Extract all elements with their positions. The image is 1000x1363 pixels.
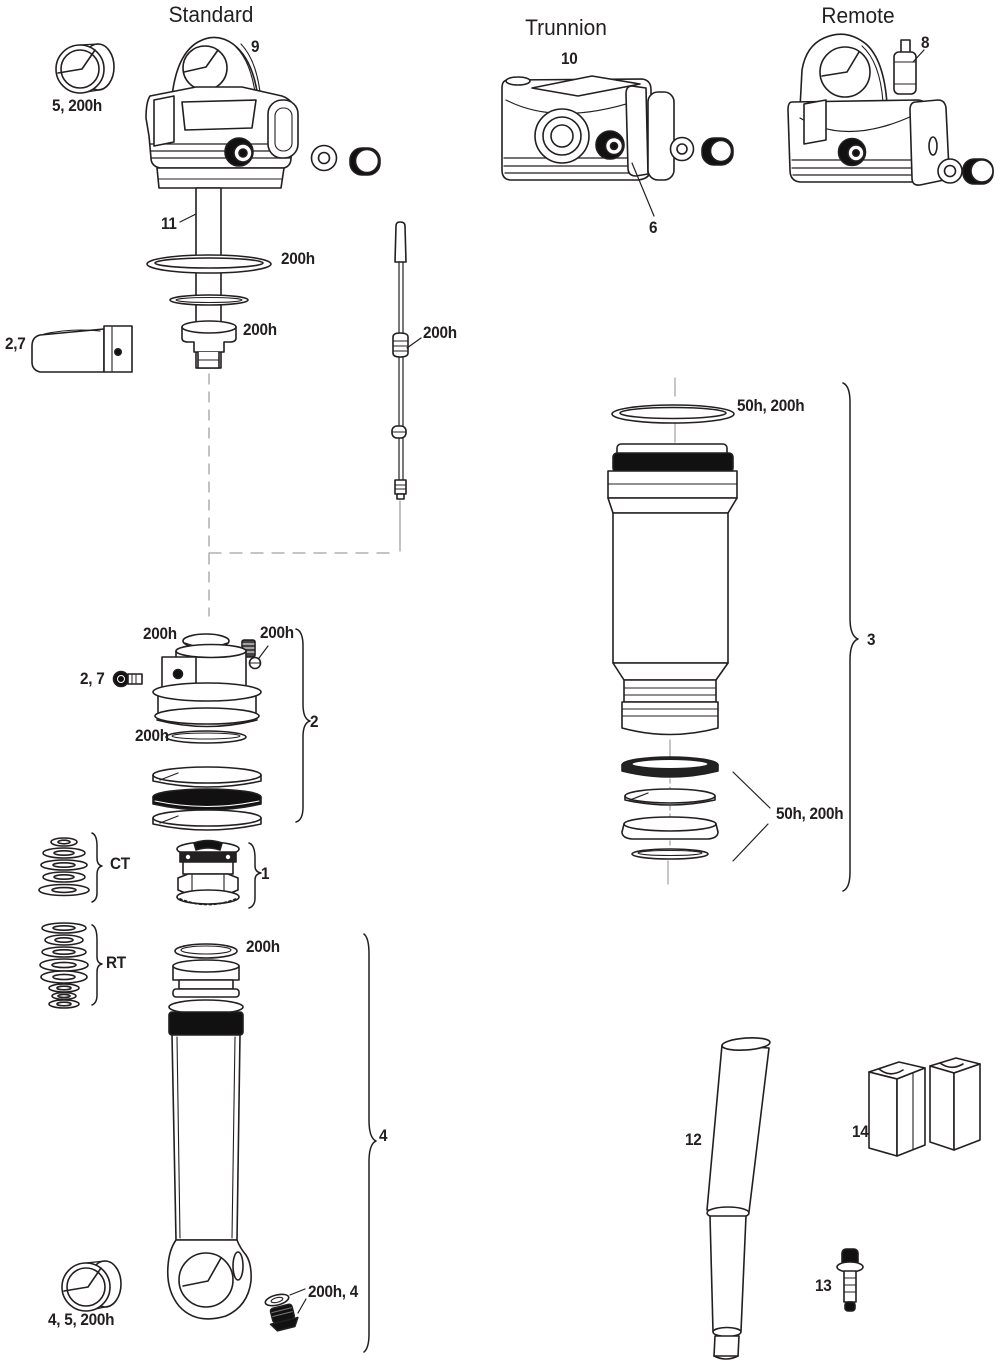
brace-item-4: [364, 934, 376, 1352]
shaft-clamp-drawing: [32, 326, 132, 372]
service-label-valve-parts: 200h, 4: [308, 1282, 358, 1302]
callout-rt: RT: [106, 953, 126, 973]
service-label-piston-cap-seal: 200h: [143, 624, 177, 644]
brace-item-3: [843, 383, 858, 891]
sealhead-drawing: [173, 944, 239, 997]
trunnion-section-title: Trunnion: [525, 15, 607, 41]
service-label-bumper: 200h: [243, 320, 277, 340]
standard-shock-head-drawing: [146, 37, 298, 188]
diagram-line-art: [0, 0, 1000, 1363]
callout-10: 10: [561, 49, 577, 69]
air-can-drawing: [608, 378, 770, 884]
callout-ct: CT: [110, 854, 130, 874]
valve-parts-drawing: [264, 1289, 306, 1332]
trunnion-shock-head-drawing: [502, 76, 674, 216]
remote-shock-head-drawing: [788, 34, 949, 185]
callout-9: 9: [251, 37, 259, 57]
service-label-bushing-top: 5, 200h: [52, 96, 102, 116]
clamp-blocks-drawing: [869, 1058, 980, 1156]
service-label-piston-set-screw: 200h: [260, 623, 294, 643]
callout-13: 13: [815, 1276, 831, 1296]
service-label-piston-bolt: 2, 7: [80, 669, 104, 689]
service-label-aircan-top-seal: 50h, 200h: [737, 396, 804, 416]
damper-piston-drawing: [177, 841, 261, 909]
service-label-rebound-rod: 200h: [423, 323, 457, 343]
damper-body-drawing: [168, 1000, 251, 1319]
trunnion-washer-and-cap-drawing: [671, 138, 734, 166]
callout-3: 3: [867, 630, 875, 650]
service-label-aircan-bot-seals: 50h, 200h: [776, 804, 843, 824]
callout-6: 6: [649, 218, 657, 238]
callout-1: 1: [261, 864, 269, 884]
callout-14: 14: [852, 1122, 868, 1142]
service-label-clamp-top: 2,7: [5, 334, 25, 354]
callout-8: 8: [921, 33, 929, 53]
bushing-top-drawing: [56, 44, 114, 93]
remote-section-title: Remote: [821, 3, 894, 29]
service-label-piston-oring: 200h: [135, 726, 169, 746]
callout-11: 11: [161, 214, 177, 234]
service-label-shaft-oring: 200h: [281, 249, 315, 269]
service-label-sealhead-oring: 200h: [246, 937, 280, 957]
rt-shim-stack-drawing: [40, 923, 102, 1008]
rebound-rod-drawing: [392, 222, 408, 499]
mounting-bolt-drawing: [837, 1249, 863, 1311]
standard-washer-and-cap-drawing: [312, 146, 381, 176]
brace-item-2: [296, 629, 310, 822]
bushing-bottom-drawing: [62, 1261, 121, 1311]
standard-section-title: Standard: [169, 2, 254, 28]
callout-2: 2: [310, 712, 318, 732]
service-label-bushing-bottom: 4, 5, 200h: [48, 1310, 114, 1330]
callout-4: 4: [379, 1126, 387, 1146]
remote-washer-and-cap-drawing: [938, 159, 993, 184]
assembly-connector-lines: [209, 374, 400, 616]
ct-shim-stack-drawing: [39, 833, 102, 902]
mounting-shaft-drawing: [707, 1036, 770, 1359]
callout-12: 12: [685, 1130, 701, 1150]
shock-service-parts-diagram: Standard Trunnion Remote 9 10 8 11 6 2 3…: [0, 0, 1000, 1363]
